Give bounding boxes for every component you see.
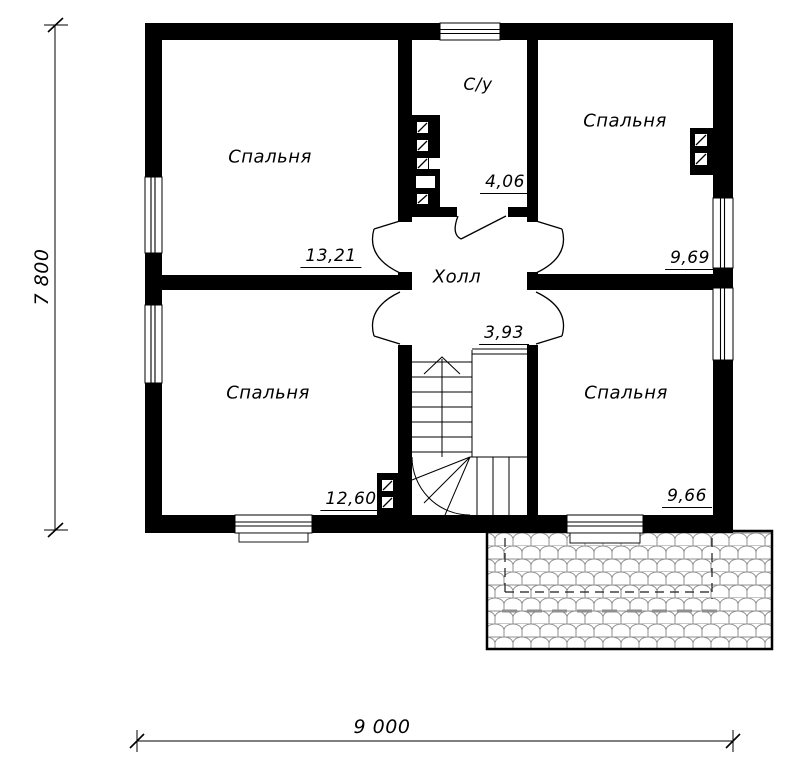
bathroom-south-wall-left <box>412 207 457 217</box>
vent-shafts <box>377 115 715 515</box>
room-area-bedroom-tl: 13,21 <box>300 246 361 268</box>
room-label-bedroom-tl: Спальня <box>228 147 312 168</box>
room-label-hall: Холл <box>433 267 481 288</box>
area-value: 4,06 <box>480 172 530 194</box>
door-swing-bedroom-tl <box>372 221 400 273</box>
dimension-width-label: 9 000 <box>354 716 411 738</box>
stair-winder-fan <box>412 457 470 515</box>
wall-right <box>713 23 733 533</box>
area-value: 9,69 <box>665 248 715 270</box>
door-swing-bedroom-bl <box>372 292 400 344</box>
wall-bottom <box>145 515 733 533</box>
room-area-bedroom-tr: 9,69 <box>665 248 715 270</box>
wall-middle-right <box>538 274 713 290</box>
window-right-bedroom-tr <box>713 198 733 268</box>
stairs <box>412 349 527 515</box>
door-swing-bathroom <box>455 216 506 239</box>
floor-plan-canvas: Спальня С/у Спальня Холл Спальня Спальня… <box>0 0 800 763</box>
wall-middle-left <box>162 275 398 290</box>
vent-shaft-bedroom-tr <box>690 128 715 175</box>
partition-east-upper <box>527 40 538 222</box>
window-left-bedroom-tl <box>145 177 162 253</box>
room-area-bedroom-bl: 12,60 <box>320 489 381 511</box>
room-area-bedroom-br: 9,66 <box>662 486 712 508</box>
window-right-bedroom-br <box>713 288 733 360</box>
dimension-height-label: 7 800 <box>31 249 53 306</box>
area-value: 12,60 <box>320 489 381 511</box>
roof-hatch <box>487 531 772 649</box>
vent-shaft-bedroom-bl <box>377 473 412 515</box>
area-value: 13,21 <box>300 246 361 268</box>
area-value: 9,66 <box>662 486 712 508</box>
room-label-bathroom: С/у <box>463 75 492 95</box>
partition-east-mid <box>527 272 538 290</box>
partition-east-lower <box>527 345 538 515</box>
wall-left <box>145 23 162 533</box>
window-top-bathroom <box>440 23 500 40</box>
window-sill <box>239 533 308 542</box>
area-value: 3,93 <box>479 323 529 345</box>
wall-top <box>145 23 733 40</box>
door-swing-bedroom-br <box>536 292 564 344</box>
plan-linework <box>0 0 800 763</box>
room-area-hall: 3,93 <box>479 323 529 345</box>
room-label-bedroom-br: Спальня <box>584 383 668 404</box>
stair-landing-edge <box>472 349 527 354</box>
partition-west-upper <box>398 40 412 222</box>
window-left-bedroom-bl <box>145 305 162 383</box>
partition-west-mid <box>398 272 412 290</box>
door-swing-bedroom-tr <box>536 221 564 273</box>
dimension-line-horizontal <box>130 730 740 752</box>
room-area-bathroom: 4,06 <box>480 172 530 194</box>
vent-shaft-bathroom <box>412 115 440 207</box>
window-sill <box>570 533 640 543</box>
stair-treads-lower <box>477 457 509 515</box>
bathroom-south-wall-right <box>508 207 527 217</box>
room-label-bedroom-bl: Спальня <box>226 383 310 404</box>
window-bottom-bedroom-bl <box>235 515 312 542</box>
window-bottom-bedroom-br <box>567 515 643 543</box>
room-label-bedroom-tr: Спальня <box>583 111 667 132</box>
